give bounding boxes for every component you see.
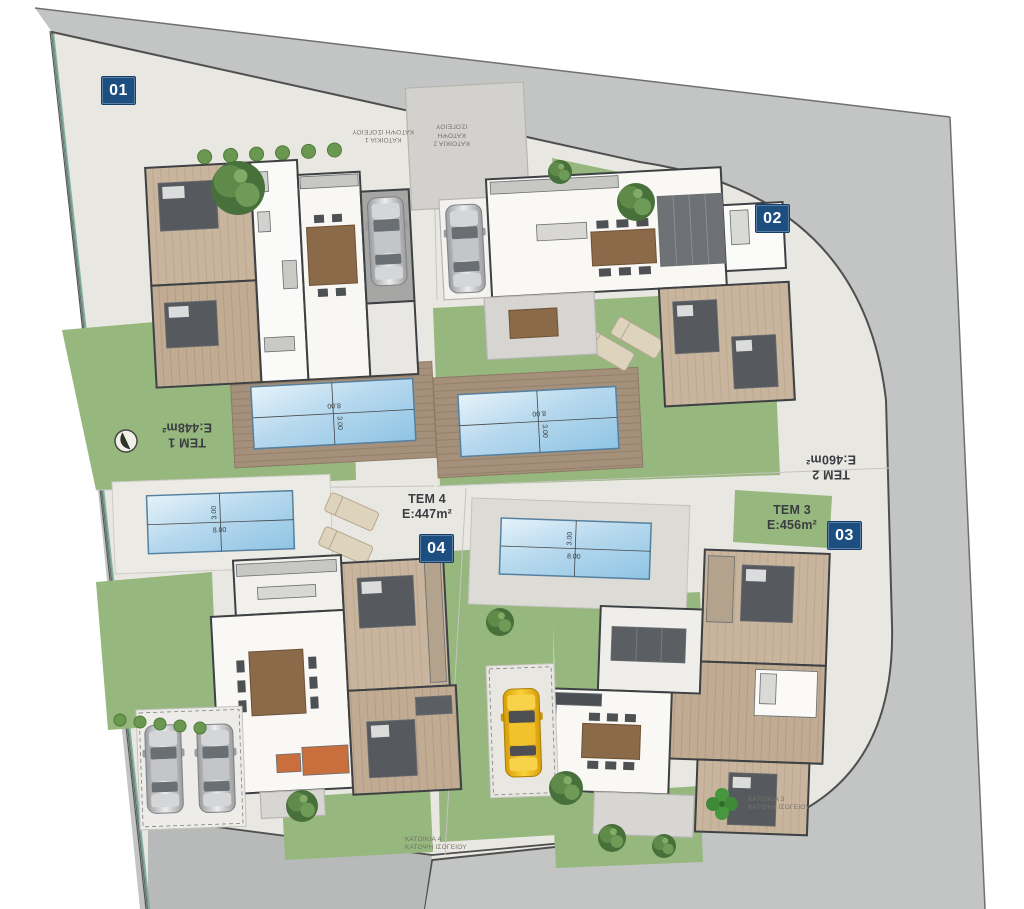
wardrobe <box>706 556 734 623</box>
sofa <box>611 626 686 663</box>
dining-table <box>249 649 306 716</box>
house-03-badge[interactable]: 03 <box>827 521 862 550</box>
bathtub <box>730 210 750 245</box>
pool-deck-2: 8.00 3.00 <box>433 367 643 478</box>
house-04-badge[interactable]: 04 <box>419 534 454 563</box>
plot-label-tem3: TEM 3E:456m² <box>757 503 827 533</box>
house-02-badge[interactable]: 02 <box>755 204 790 233</box>
car <box>194 724 239 813</box>
plot-label-tem1: TEM 1E:448m² <box>158 420 216 450</box>
car <box>500 688 545 777</box>
site-plan: 8.00 3.00 8.00 3.00 8.00 3.00 8.00 3.00 <box>0 0 1024 909</box>
svg-text:8.00: 8.00 <box>213 527 227 534</box>
svg-text:3.00: 3.00 <box>541 424 549 438</box>
svg-text:8.00: 8.00 <box>532 409 546 417</box>
plot-label-tem2: TEM 2E:460m² <box>795 452 867 482</box>
parking-house-04 <box>136 706 246 830</box>
svg-text:3.00: 3.00 <box>211 506 218 520</box>
patio-table <box>509 308 558 338</box>
svg-text:3.00: 3.00 <box>335 416 343 430</box>
svg-text:8.00: 8.00 <box>567 553 581 560</box>
plot-label-tem4: TEM 4E:447m² <box>398 492 456 522</box>
house-04-plan <box>208 549 462 820</box>
car <box>442 204 489 294</box>
house-01-badge[interactable]: 01 <box>101 76 136 105</box>
house-03-caption: ΚΑΤΟΙΚΙΑ 3ΚΑΤΟΨΗ ΙΣΟΓΕΙΟΥ <box>748 796 823 813</box>
svg-text:8.00: 8.00 <box>327 401 341 409</box>
dining-table <box>582 723 641 759</box>
sofa <box>415 695 452 715</box>
car <box>142 724 187 813</box>
pool-deck-4: 8.00 3.00 <box>468 498 690 612</box>
house-02-caption: ΚΑΤΟΙΚΙΑ 2ΚΑΤΟΨΗ ΙΣΟΓΕΙΟΥ <box>424 121 479 146</box>
dining-table <box>591 229 657 266</box>
bathtub <box>759 674 776 705</box>
house-04-caption: ΚΑΤΟΙΚΙΑ 4ΚΑΤΟΨΗ ΙΣΟΓΕΙΟΥ <box>405 836 480 853</box>
house-01-caption: ΚΑΤΟΙΚΙΑ 1ΚΑΤΟΨΗ ΙΣΟΓΕΙΟΥ <box>352 126 414 143</box>
sofa <box>302 745 349 775</box>
svg-text:3.00: 3.00 <box>566 532 573 546</box>
parking-house-03 <box>486 664 559 798</box>
dining-table <box>306 225 357 285</box>
car <box>364 196 411 286</box>
site-plan-drawing: 8.00 3.00 8.00 3.00 8.00 3.00 8.00 3.00 <box>0 0 1024 909</box>
kitchen-counter <box>300 174 359 189</box>
